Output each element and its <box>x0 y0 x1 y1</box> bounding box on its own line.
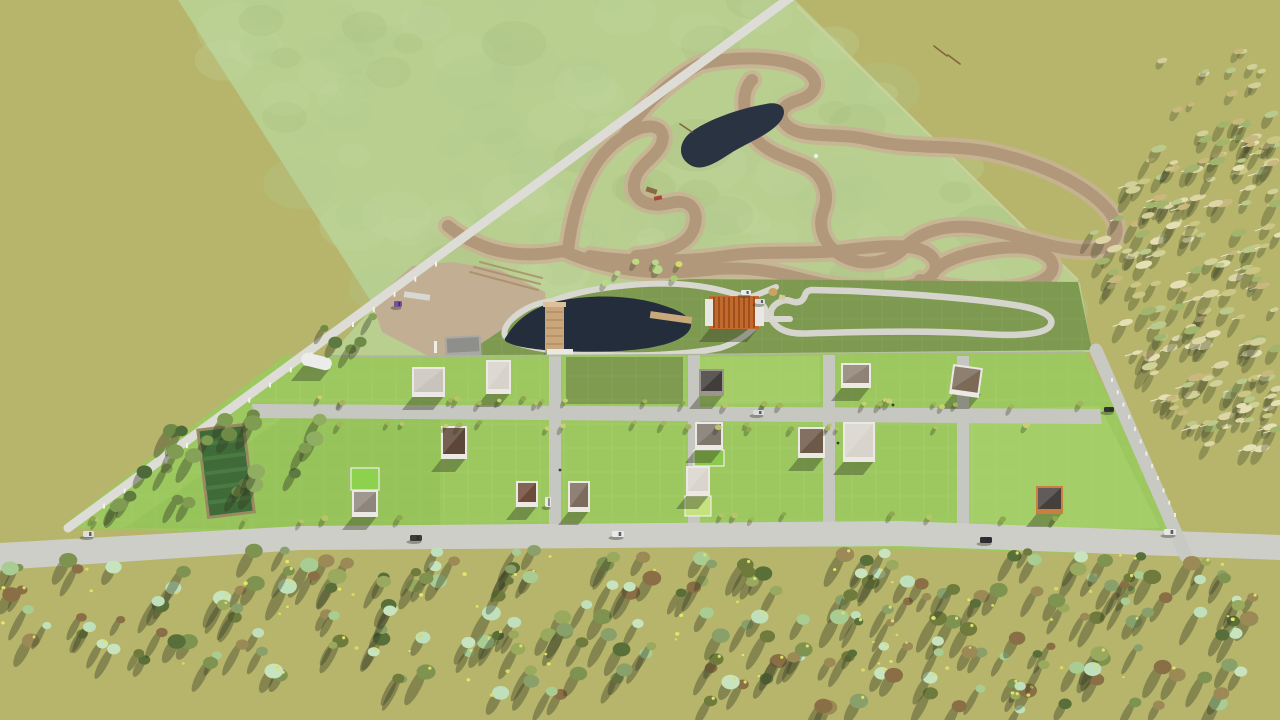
vacant-lot-dark <box>566 357 683 404</box>
storage-barn-roof <box>447 337 480 353</box>
aerial-town-scene <box>0 0 1280 720</box>
pedestrian[interactable] <box>892 404 895 407</box>
track-marker <box>814 154 818 158</box>
game-viewport[interactable] <box>0 0 1280 720</box>
tan-tree <box>769 288 778 296</box>
observation-tower-cap <box>543 302 566 307</box>
market-end-west <box>705 299 713 326</box>
pedestrian[interactable] <box>837 442 840 445</box>
pedestrian[interactable] <box>559 469 562 472</box>
cross-street[interactable] <box>549 355 561 535</box>
barn-fence <box>434 341 437 353</box>
